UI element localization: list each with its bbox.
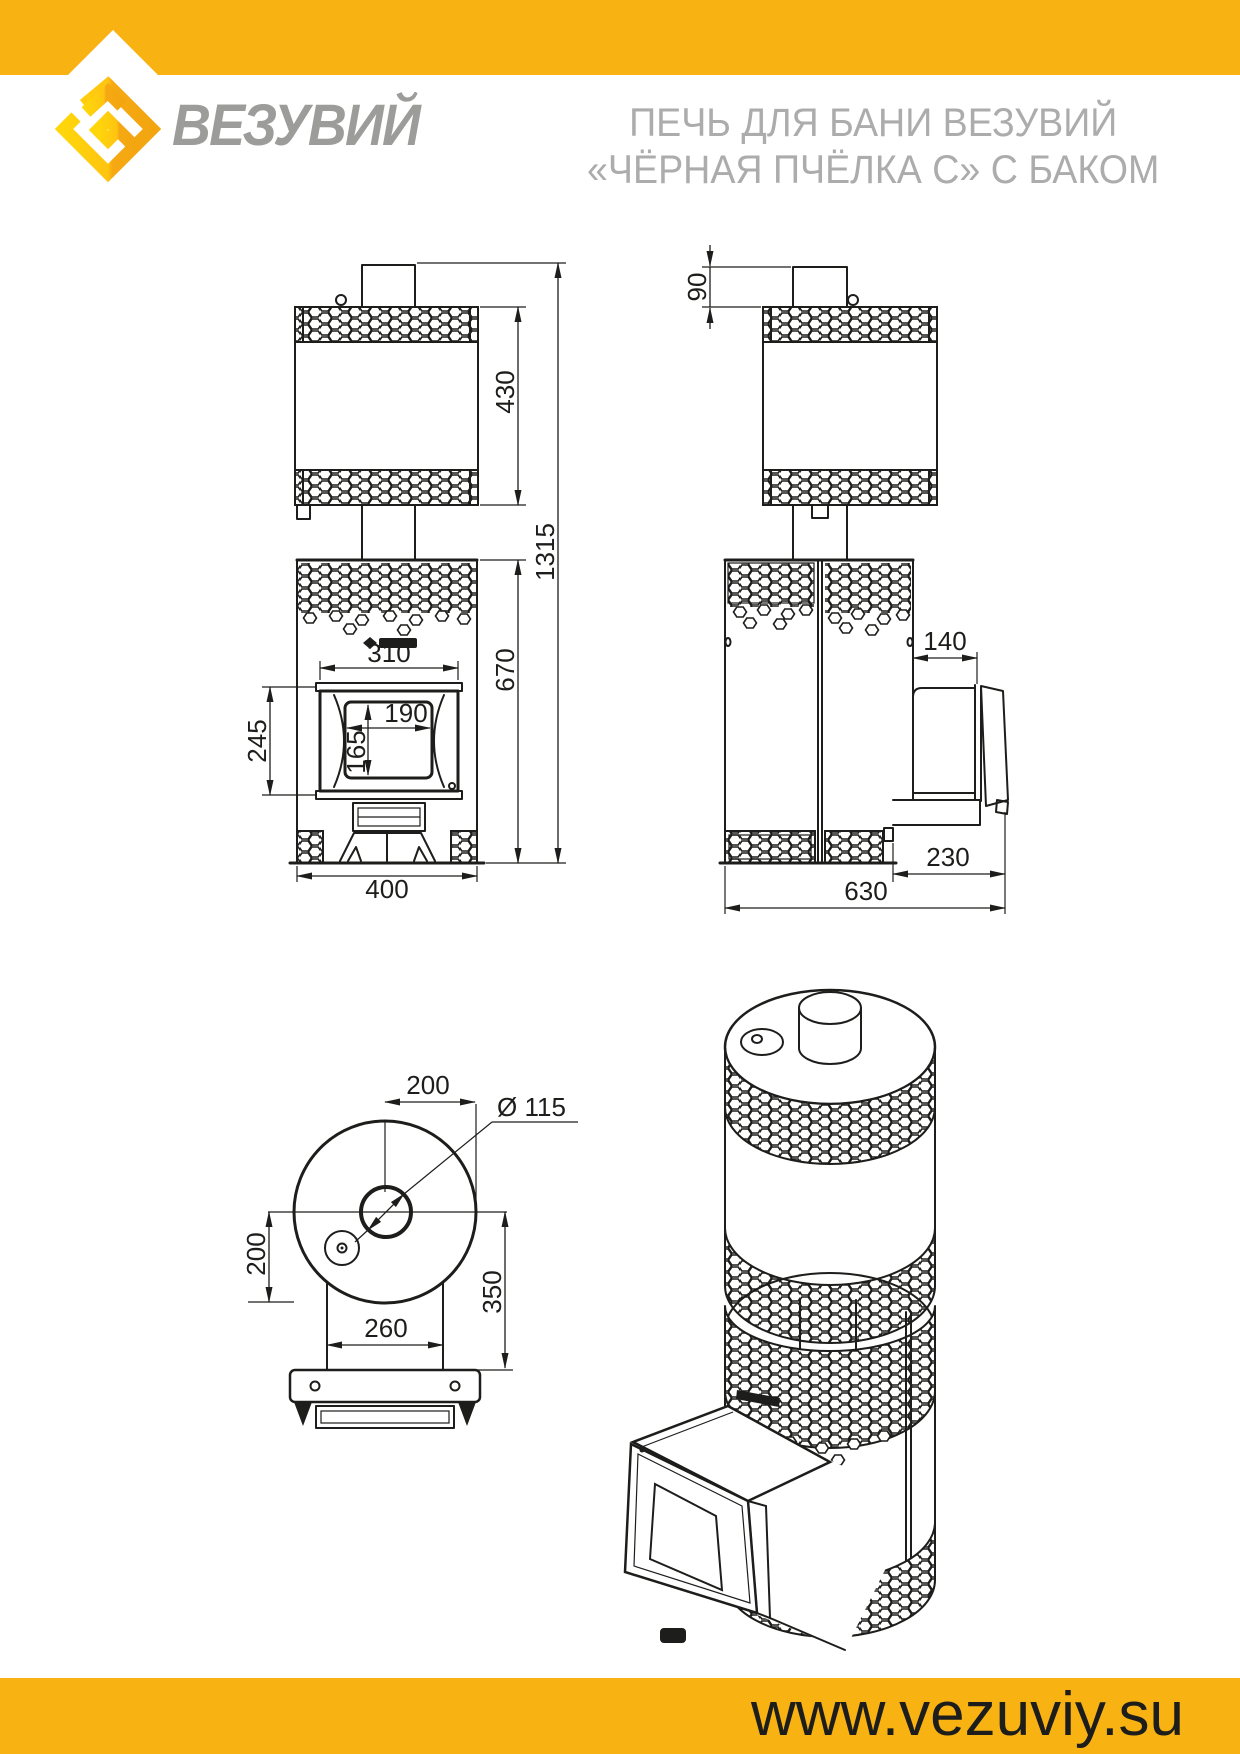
- front-view-drawing: 430 1315 670 310 190 165 245 400: [242, 263, 566, 904]
- logo-white-notch: [68, 30, 158, 124]
- front-base-mesh-right: [451, 831, 477, 863]
- dim-glass-height: 165: [341, 730, 371, 773]
- front-base-mesh-left: [297, 831, 323, 863]
- dim-body-height: 670: [490, 648, 520, 691]
- dim-tunnel-top: 140: [923, 626, 966, 656]
- side-tunnel-top: [913, 688, 975, 697]
- iso-door-foot: [660, 1628, 686, 1643]
- front-door-latch: [449, 783, 455, 789]
- dim-door-height: 245: [242, 719, 272, 762]
- dim-chimney-offset: 200: [406, 1070, 449, 1100]
- side-tank-valve: [848, 295, 858, 305]
- dim-glass-width: 190: [384, 698, 427, 728]
- side-open-door: [981, 686, 1008, 806]
- side-tunnel-lip: [893, 800, 980, 825]
- dim-chimney-height: 90: [682, 273, 712, 302]
- spec-sheet-page: ВЕЗУВИЙ ПЕЧЬ ДЛЯ БАНИ ВЕЗУВИЙ «ЧЁРНАЯ ПЧ…: [0, 0, 1240, 1754]
- front-body-mesh: [298, 563, 476, 613]
- dim-tunnel-width: 260: [364, 1313, 407, 1343]
- dim-chimney-diameter: Ø 115: [497, 1092, 566, 1122]
- dim-left-offset: 200: [241, 1232, 271, 1275]
- dim-tank-height: 430: [490, 370, 520, 413]
- dim-depth: 630: [844, 876, 887, 906]
- dim-tunnel-extent: 350: [477, 1270, 507, 1313]
- dim-width: 400: [365, 874, 408, 904]
- dim-total-height: 1315: [530, 523, 560, 581]
- dim-tunnel-depth: 230: [926, 842, 969, 872]
- front-tank-tab: [297, 505, 310, 519]
- dim-door-width: 310: [367, 638, 410, 668]
- iso-tank-mesh-lower: [725, 1228, 935, 1343]
- front-chimney: [362, 265, 415, 307]
- front-tank-top-mesh: [295, 307, 478, 342]
- technical-drawing: 430 1315 670 310 190 165 245 400: [0, 0, 1240, 1754]
- top-view-drawing: 200 Ø 115 200 350 260: [241, 1070, 578, 1428]
- side-view-drawing: 90 140 230 630: [682, 245, 1008, 914]
- front-tank-valve: [336, 295, 346, 305]
- side-chimney: [793, 267, 847, 307]
- vezuviy-diamond-logo: [64, 30, 158, 173]
- front-tank-bottom-mesh: [295, 470, 478, 505]
- logo-diamond: [64, 85, 152, 173]
- isometric-view-drawing: [625, 990, 935, 1650]
